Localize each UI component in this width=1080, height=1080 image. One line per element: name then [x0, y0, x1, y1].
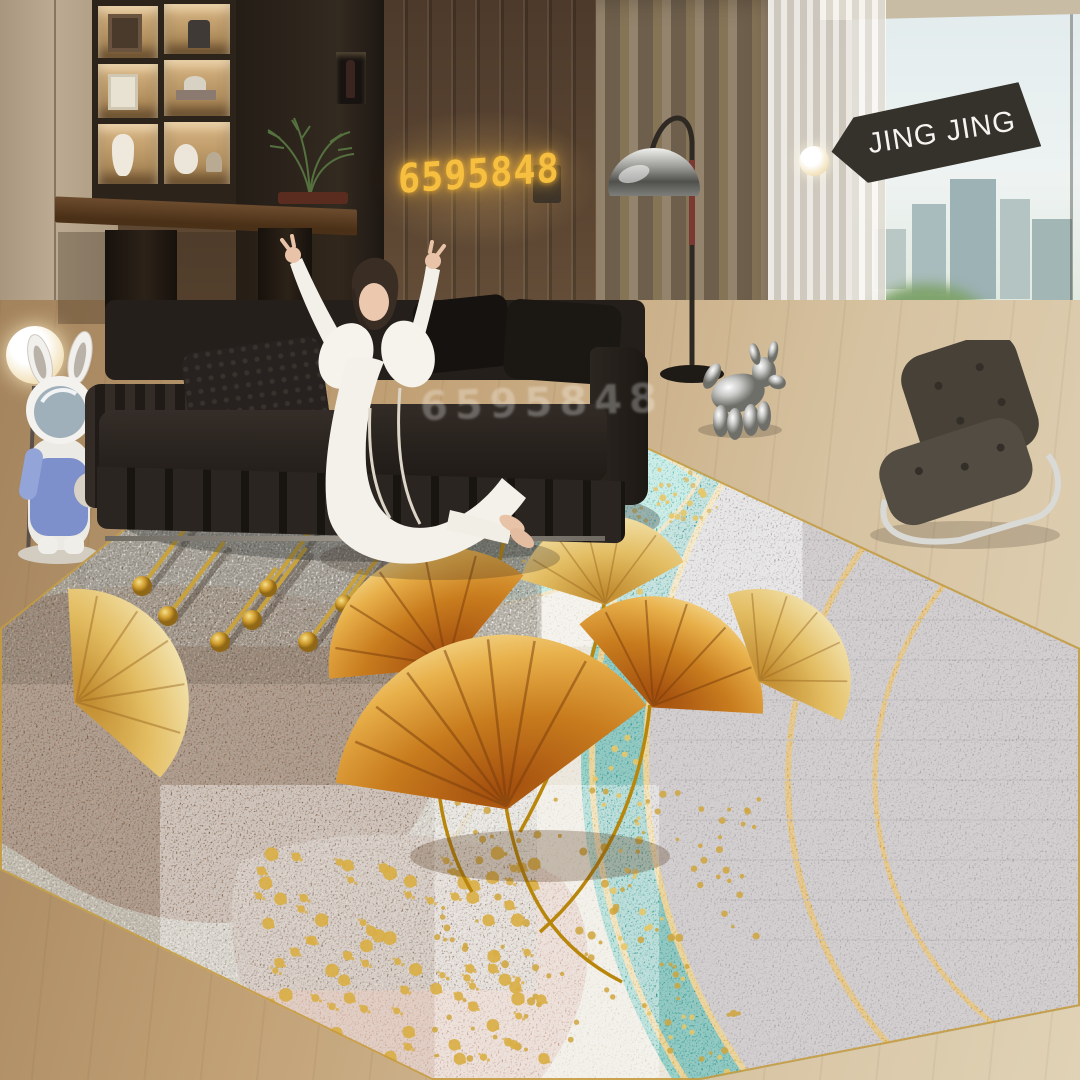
- tag-glow-ball: [799, 146, 829, 176]
- brand-tag-label: JING JING: [850, 105, 1018, 163]
- left-fingers: [282, 236, 294, 248]
- woman-stretching: [250, 228, 580, 588]
- living-room-scene: 6595848: [0, 0, 1080, 1080]
- dress-folds: [370, 388, 420, 524]
- right-fingers: [430, 242, 444, 254]
- face: [359, 283, 389, 321]
- leaf-shadow: [410, 830, 670, 882]
